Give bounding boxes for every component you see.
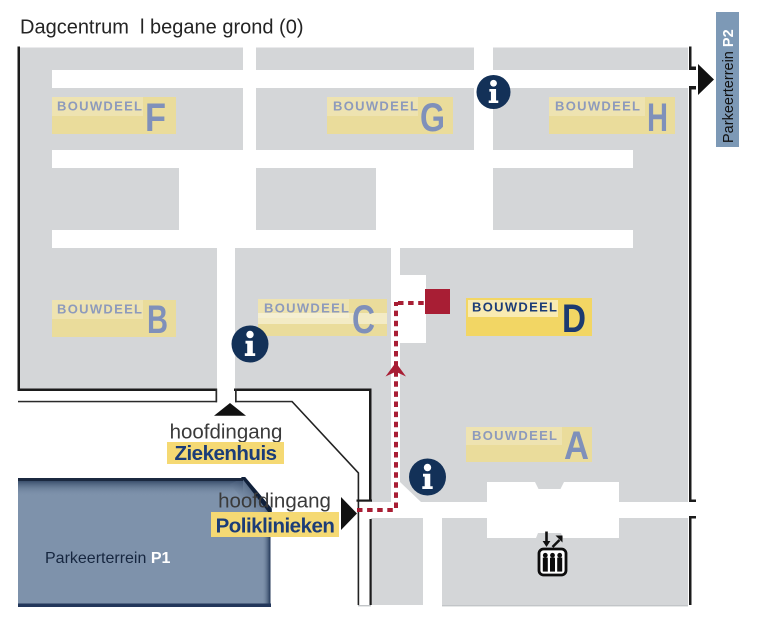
svg-text:A: A: [564, 424, 589, 468]
svg-text:hoofdingang: hoofdingang: [218, 490, 331, 513]
svg-text:BOUWDEEL: BOUWDEEL: [472, 300, 557, 315]
svg-text:D: D: [562, 297, 586, 341]
svg-text:Parkeerterrein P2: Parkeerterrein P2: [721, 29, 737, 143]
svg-text:C: C: [352, 298, 375, 342]
svg-text:BOUWDEEL: BOUWDEEL: [555, 99, 640, 114]
svg-text:BOUWDEEL: BOUWDEEL: [57, 302, 142, 317]
svg-text:B: B: [147, 298, 168, 342]
svg-text:Ziekenhuis: Ziekenhuis: [174, 442, 276, 465]
svg-text:F: F: [145, 96, 166, 140]
svg-text:Poliklinieken: Poliklinieken: [216, 515, 335, 538]
svg-text:BOUWDEEL: BOUWDEEL: [333, 99, 418, 114]
svg-text:BOUWDEEL: BOUWDEEL: [472, 428, 557, 443]
svg-text:Dagcentrum l begane grond (0): Dagcentrum l begane grond (0): [20, 17, 304, 39]
svg-text:hoofdingang: hoofdingang: [170, 421, 283, 444]
svg-text:BOUWDEEL: BOUWDEEL: [57, 99, 142, 114]
svg-text:Parkeerterrein P1: Parkeerterrein P1: [45, 550, 171, 567]
svg-text:H: H: [647, 96, 668, 140]
svg-text:G: G: [420, 96, 445, 140]
